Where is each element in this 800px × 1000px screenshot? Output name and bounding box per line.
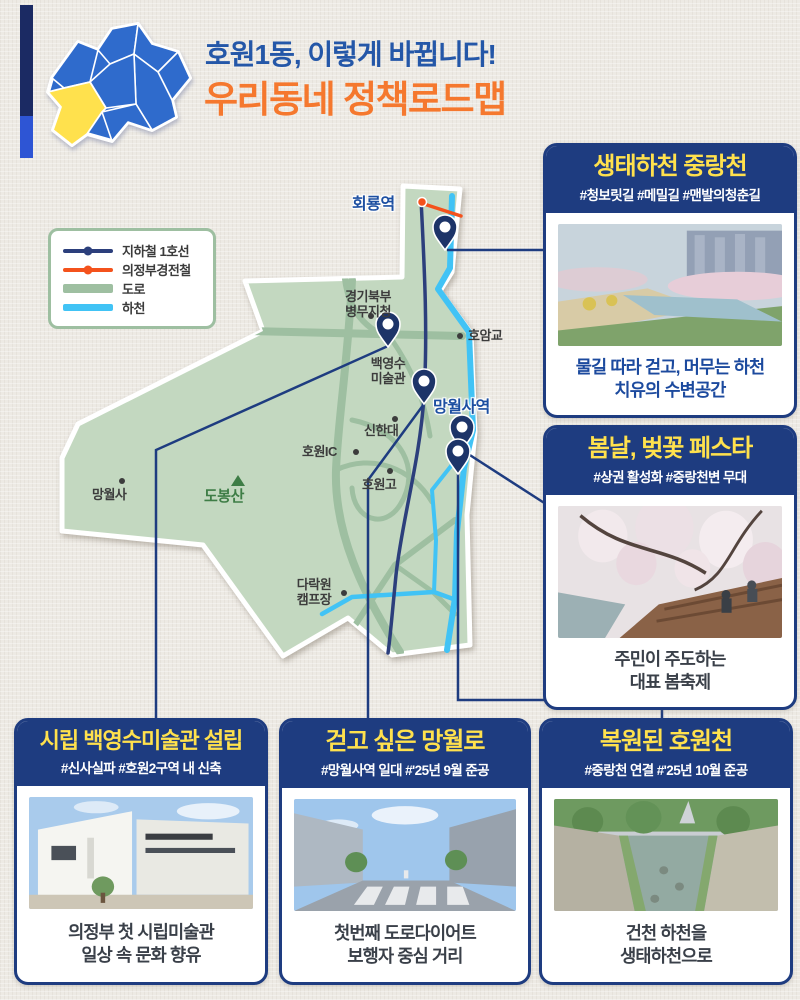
poster-title-line1: 호원1동, 이렇게 바뀝니다! bbox=[205, 33, 496, 73]
card-hashtags: #중랑천 연결 #'25년 10월 준공 bbox=[546, 759, 786, 779]
card-caption: 건천 하천을 생태하천으로 bbox=[542, 911, 790, 982]
hoeryong-station-dot bbox=[418, 198, 427, 207]
card-caption: 주민이 주도하는 대표 봄축제 bbox=[546, 638, 794, 707]
legend-label: 하천 bbox=[122, 298, 145, 317]
card-blossom-festa: 봄날, 벚꽃 페스타 #상권 활성화 #중랑천변 무대 주민이 주도하는 대표 … bbox=[543, 425, 797, 710]
road-sample bbox=[63, 284, 113, 293]
label-howon-high: 호원고 bbox=[362, 478, 396, 493]
station-label-mangwolsa: 망월사역 bbox=[433, 393, 490, 417]
stream-sample bbox=[63, 304, 113, 311]
card-title: 봄날, 벚꽃 페스타 bbox=[550, 436, 790, 461]
station-label-hoeryong: 회룡역 bbox=[352, 190, 395, 214]
photo-cherry-blossoms bbox=[558, 506, 782, 638]
card-howoncheon: 복원된 호원천 #중랑천 연결 #'25년 10월 준공 건천 하천을 생태하천… bbox=[539, 718, 793, 985]
card-header: 걷고 싶은 망월로 #망월사역 일대 #'25년 9월 준공 bbox=[282, 721, 528, 788]
card-header: 시립 백영수미술관 설립 #신사실파 #호원2구역 내 신축 bbox=[17, 721, 265, 786]
legend-item-road: 도로 bbox=[63, 279, 203, 298]
card-caption: 물길 따라 걷고, 머무는 하천 치유의 수변공간 bbox=[546, 346, 794, 415]
poster-title-line2: 우리동네 정책로드맵 bbox=[204, 69, 506, 123]
lrt-line-sample bbox=[63, 268, 113, 272]
photo-museum-building bbox=[29, 797, 253, 909]
header-accent-bar bbox=[20, 5, 33, 158]
card-museum: 시립 백영수미술관 설립 #신사실파 #호원2구역 내 신축 의정부 첫 시립미… bbox=[14, 718, 268, 985]
legend-label: 지하철 1호선 bbox=[122, 241, 189, 260]
district-map-icon bbox=[40, 20, 200, 154]
legend-item-subway: 지하철 1호선 bbox=[63, 241, 203, 260]
card-caption: 첫번째 도로다이어트 보행자 중심 거리 bbox=[282, 911, 528, 982]
card-hashtags: #청보릿길 #메밀길 #맨발의청춘길 bbox=[550, 184, 790, 204]
card-title: 생태하천 중랑천 bbox=[550, 154, 790, 179]
label-mangwolsa-temple: 망월사 bbox=[92, 488, 126, 503]
label-hoamgyo: 호암교 bbox=[468, 329, 502, 344]
label-howon-ic: 호원IC bbox=[302, 445, 337, 460]
legend-label: 의정부경전철 bbox=[122, 260, 191, 279]
photo-street-view bbox=[294, 799, 516, 911]
card-caption: 의정부 첫 시립미술관 일상 속 문화 향유 bbox=[17, 909, 265, 982]
card-mangwolro: 걷고 싶은 망월로 #망월사역 일대 #'25년 9월 준공 첫번째 도 bbox=[279, 718, 531, 985]
card-hashtags: #망월사역 일대 #'25년 9월 준공 bbox=[286, 759, 524, 779]
card-title: 걷고 싶은 망월로 bbox=[286, 729, 524, 754]
label-baekyeongsu-museum: 백영수 미술관 bbox=[352, 357, 424, 386]
subway-line-sample bbox=[63, 249, 113, 253]
label-dobongsan: 도봉산 bbox=[204, 489, 244, 506]
card-header: 봄날, 벚꽃 페스타 #상권 활성화 #중랑천변 무대 bbox=[546, 428, 794, 495]
label-darakwon-camp: 다락원 캠프장 bbox=[286, 578, 342, 607]
photo-jungnangcheon-stream bbox=[558, 224, 782, 346]
label-gyeonggi-office: 경기북부 병무지청 bbox=[329, 290, 407, 319]
card-title: 복원된 호원천 bbox=[546, 729, 786, 754]
photo-restored-stream bbox=[554, 799, 778, 911]
legend-item-lrt: 의정부경전철 bbox=[63, 260, 203, 279]
card-hashtags: #상권 활성화 #중랑천변 무대 bbox=[550, 466, 790, 486]
policy-roadmap-poster: 호원1동, 이렇게 바뀝니다! 우리동네 정책로드맵 bbox=[0, 0, 800, 1000]
card-hashtags: #신사실파 #호원2구역 내 신축 bbox=[21, 757, 261, 777]
legend-item-stream: 하천 bbox=[63, 298, 203, 317]
map-legend: 지하철 1호선 의정부경전철 도로 하천 bbox=[48, 228, 216, 329]
legend-label: 도로 bbox=[122, 279, 145, 298]
card-title: 시립 백영수미술관 설립 bbox=[21, 729, 261, 752]
card-header: 생태하천 중랑천 #청보릿길 #메밀길 #맨발의청춘길 bbox=[546, 146, 794, 213]
label-shinhan-univ: 신한대 bbox=[364, 424, 398, 439]
card-header: 복원된 호원천 #중랑천 연결 #'25년 10월 준공 bbox=[542, 721, 790, 788]
card-jungnangcheon: 생태하천 중랑천 #청보릿길 #메밀길 #맨발의청춘길 물길 따라 걷고, 머무… bbox=[543, 143, 797, 418]
